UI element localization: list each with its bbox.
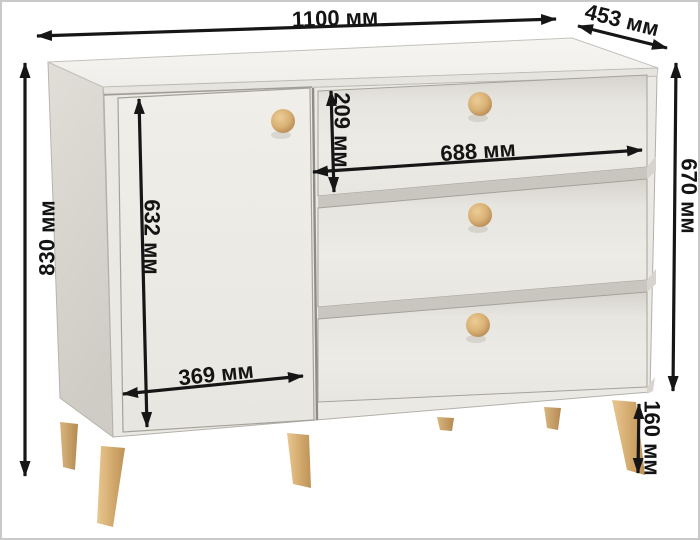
drawer-3-knob — [466, 313, 490, 337]
product-dimension-diagram: 1100 мм 453 мм 830 мм 670 мм 632 мм 209 … — [0, 0, 700, 540]
drawer-2-knob — [468, 203, 492, 227]
dim-overall-width-label: 1100 мм — [291, 4, 378, 32]
drawer-1-knob — [468, 92, 492, 116]
dim-leg-height-label: 160 мм — [640, 400, 665, 475]
door-knob — [271, 109, 295, 133]
dim-leg-height-arrow — [638, 404, 639, 473]
dim-overall-height-label: 830 мм — [35, 200, 60, 275]
dim-body-height-label: 670 мм — [677, 158, 700, 233]
dim-door-height-label: 632 мм — [140, 199, 165, 274]
diagram-canvas: 1100 мм 453 мм 830 мм 670 мм 632 мм 209 … — [0, 0, 700, 540]
dim-drawer-width-label: 688 мм — [440, 136, 517, 166]
dim-top-drawer-height-label: 209 мм — [330, 92, 355, 167]
